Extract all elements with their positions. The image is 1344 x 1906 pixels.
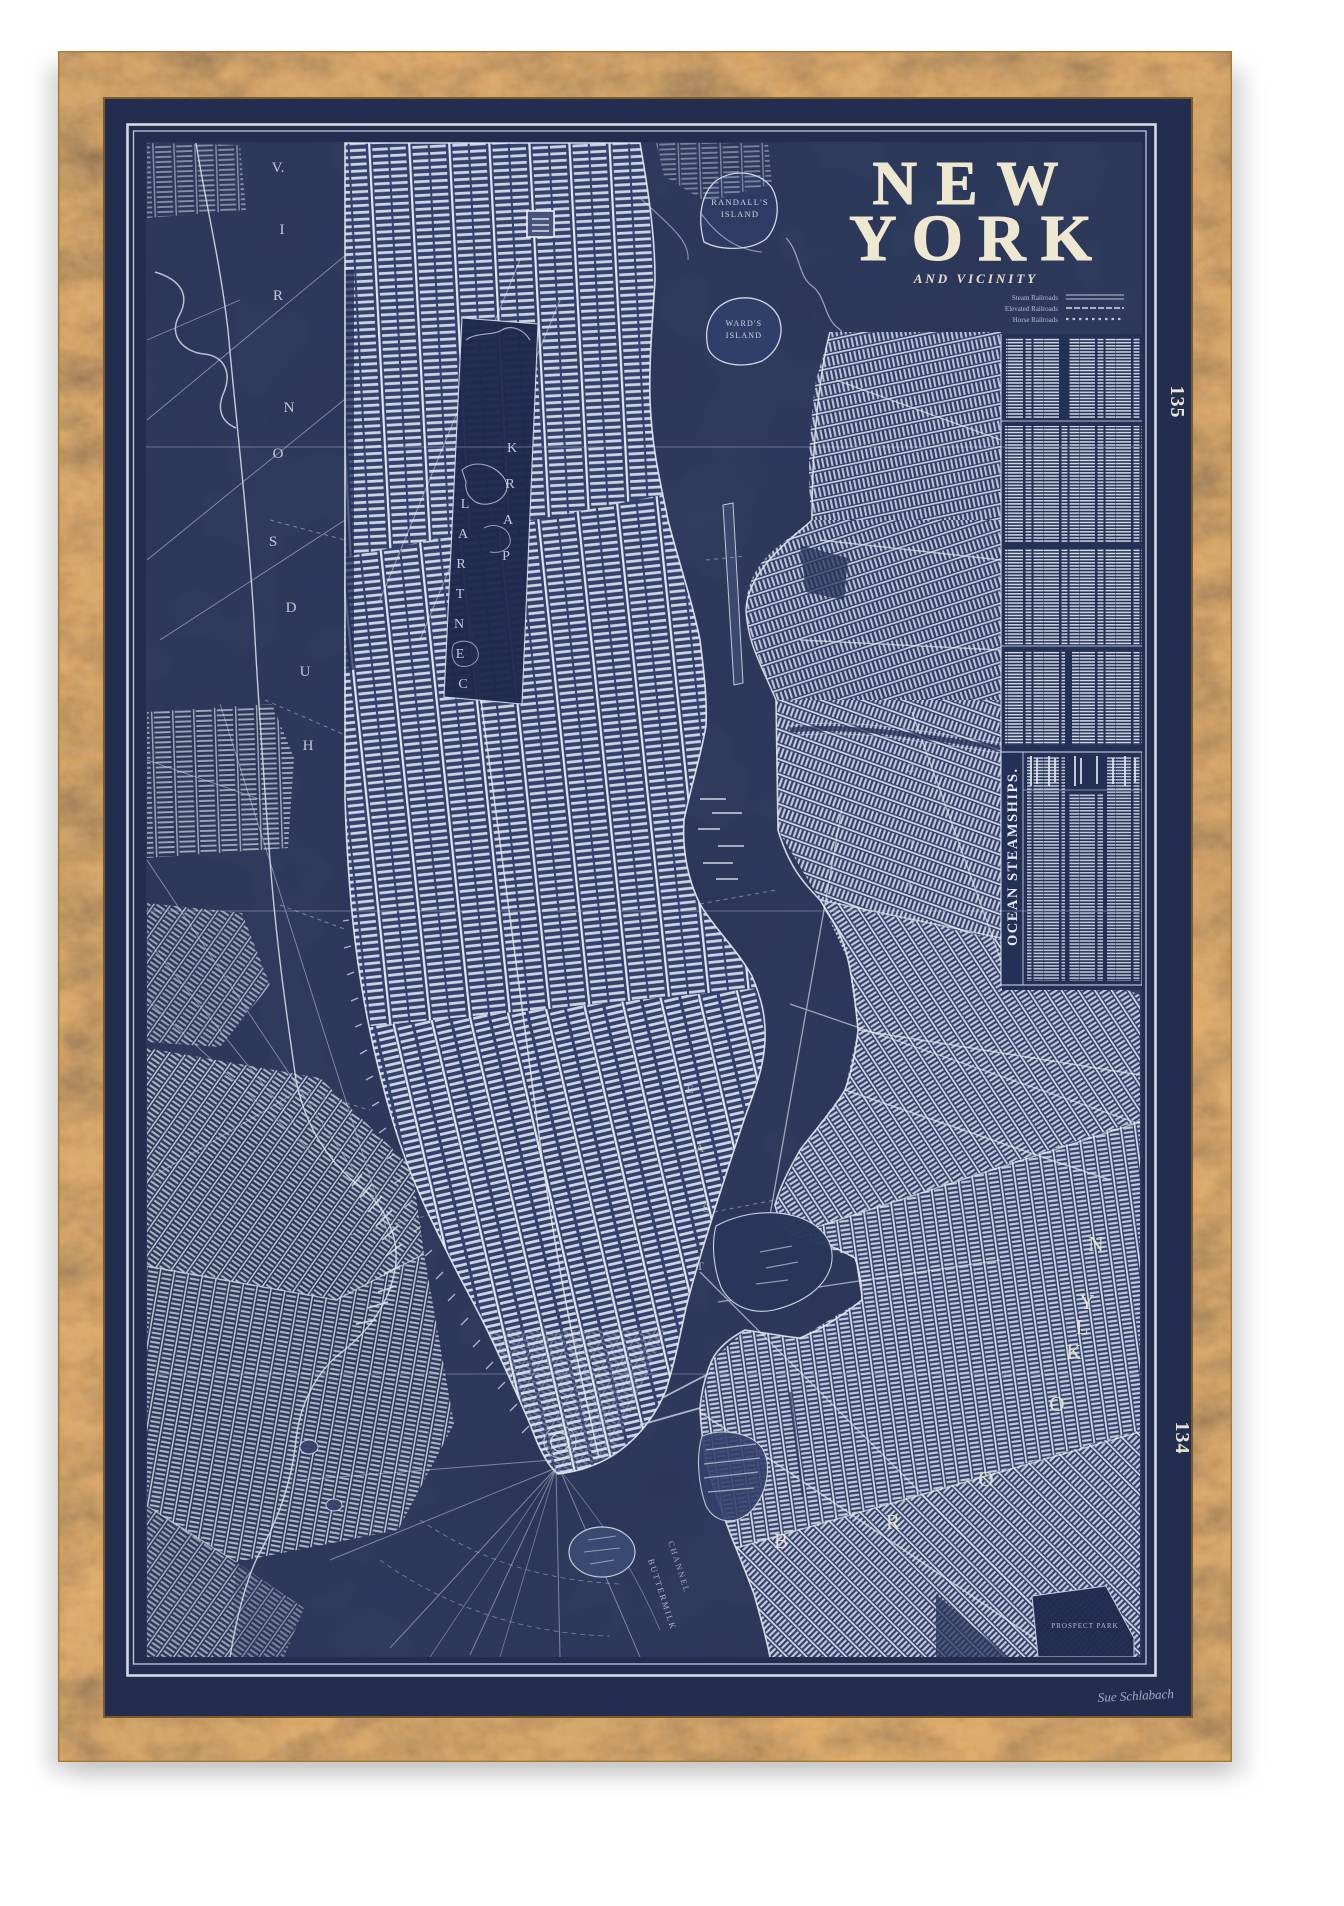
svg-text:OCEAN STEAMSHIPS.: OCEAN STEAMSHIPS. <box>1005 767 1021 946</box>
svg-text:ISLAND: ISLAND <box>726 331 763 340</box>
svg-text:S: S <box>703 1201 710 1215</box>
svg-text:YORK: YORK <box>849 202 1107 275</box>
svg-text:H: H <box>303 738 314 754</box>
svg-text:E: E <box>456 647 465 662</box>
svg-text:WARD'S: WARD'S <box>726 319 763 328</box>
svg-text:RANDALL'S: RANDALL'S <box>711 197 769 207</box>
svg-text:P: P <box>502 549 510 564</box>
svg-text:O: O <box>978 1467 993 1491</box>
svg-text:I: I <box>280 222 285 238</box>
svg-text:T: T <box>696 1259 704 1273</box>
svg-text:135: 135 <box>1166 386 1188 419</box>
svg-text:D: D <box>286 600 297 616</box>
svg-text:C: C <box>458 677 467 692</box>
svg-text:A: A <box>458 527 469 542</box>
svg-text:K: K <box>1066 1340 1081 1364</box>
svg-text:L: L <box>1076 1315 1089 1339</box>
svg-text:R: R <box>456 557 466 572</box>
svg-text:PROSPECT PARK: PROSPECT PARK <box>1051 1622 1118 1630</box>
svg-text:L: L <box>461 497 470 512</box>
svg-text:O: O <box>1049 1392 1064 1416</box>
svg-text:A: A <box>503 513 514 528</box>
svg-text:I: I <box>910 837 914 851</box>
svg-text:Horse Railroads: Horse Railroads <box>1013 316 1059 324</box>
svg-text:R: R <box>505 477 515 492</box>
svg-text:A: A <box>696 1141 705 1155</box>
svg-text:Y: Y <box>909 915 918 929</box>
svg-text:ISLAND: ISLAND <box>721 209 759 219</box>
svg-text:S: S <box>269 534 277 550</box>
svg-text:T: T <box>906 879 914 893</box>
svg-text:B: B <box>774 1529 788 1553</box>
svg-text:Steam Railroads: Steam Railroads <box>1012 294 1058 302</box>
svg-text:R: R <box>273 288 283 304</box>
svg-text:R: R <box>886 1510 900 1534</box>
svg-text:E: E <box>686 1082 693 1096</box>
svg-text:V.: V. <box>272 160 285 176</box>
svg-text:K: K <box>507 441 517 456</box>
svg-text:N: N <box>284 400 295 416</box>
svg-text:T: T <box>456 587 465 602</box>
svg-text:Elevated Railroads: Elevated Railroads <box>1005 305 1058 313</box>
svg-text:N: N <box>1088 1232 1103 1256</box>
svg-text:U: U <box>300 664 311 680</box>
svg-text:134: 134 <box>1171 1422 1193 1455</box>
svg-text:Y: Y <box>1079 1290 1094 1314</box>
svg-text:C: C <box>906 761 914 775</box>
svg-text:N: N <box>454 617 464 632</box>
svg-text:O: O <box>273 446 284 462</box>
svg-text:AND VICINITY: AND VICINITY <box>913 271 1039 286</box>
